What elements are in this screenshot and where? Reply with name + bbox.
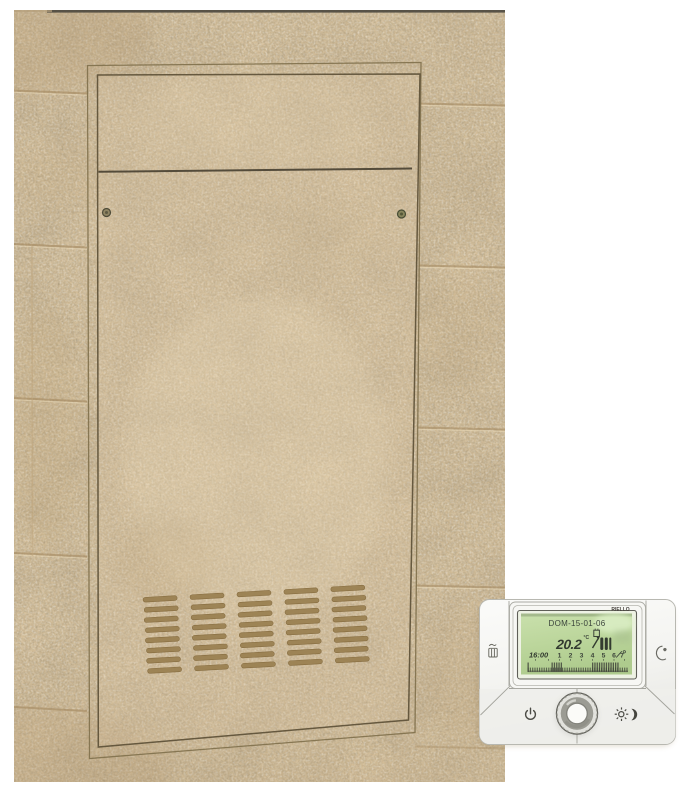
svg-text:4: 4	[591, 653, 595, 660]
svg-text:1: 1	[558, 653, 562, 660]
svg-text:6: 6	[612, 653, 616, 660]
svg-text:°C: °C	[584, 635, 590, 641]
svg-text:RIELLO: RIELLO	[611, 607, 629, 613]
svg-text:2: 2	[569, 653, 573, 660]
svg-text:3: 3	[580, 653, 584, 660]
svg-text:5: 5	[602, 653, 606, 660]
svg-text:DOM-15-01-06: DOM-15-01-06	[549, 619, 606, 628]
svg-text:20.2: 20.2	[555, 637, 583, 652]
svg-text:7: 7	[620, 653, 624, 660]
svg-text:16:00: 16:00	[529, 651, 549, 660]
